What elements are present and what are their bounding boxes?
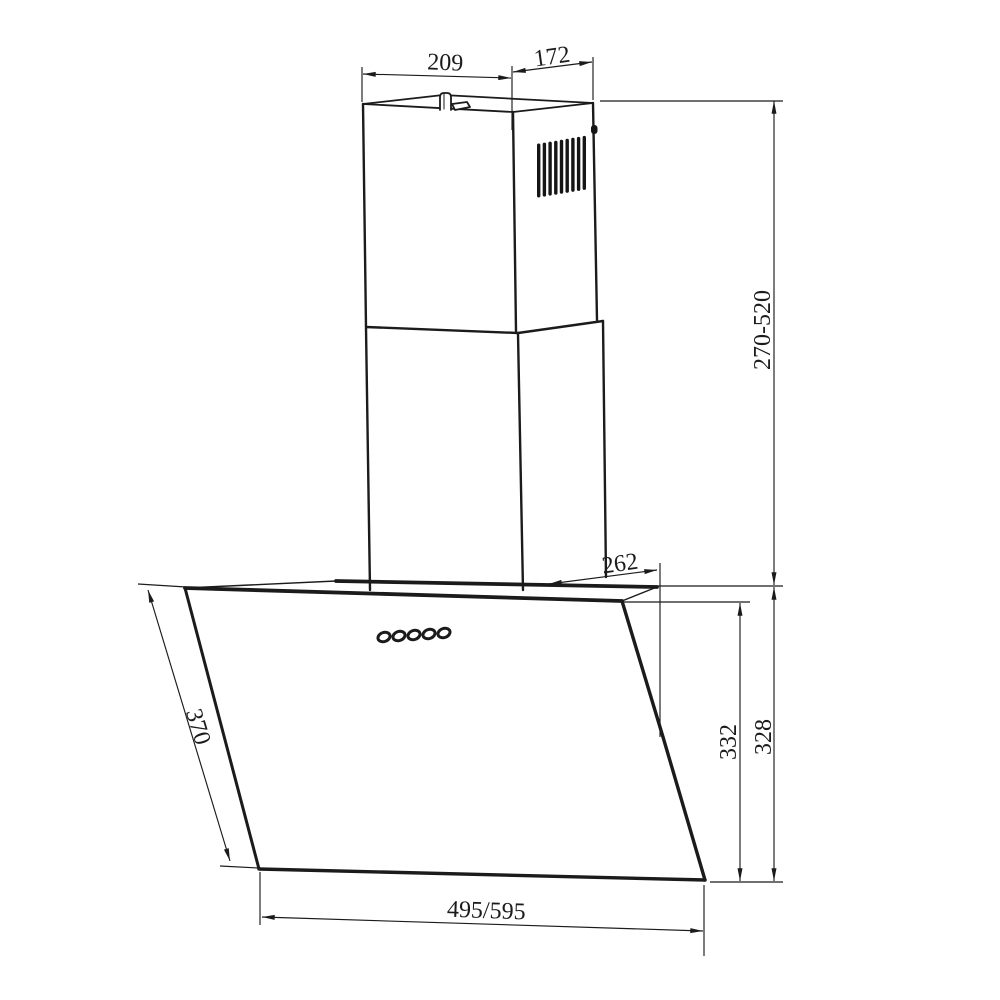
dim-label-canopy-top-depth: 262	[600, 549, 639, 580]
glass-right-edge	[622, 601, 705, 880]
chimney-lower-front-right-edge	[518, 334, 523, 590]
hood-canopy	[185, 581, 705, 880]
drawing-canvas: 209 172 270-520 262 332 328 370 495/595	[0, 0, 1000, 1000]
control-button-4	[422, 628, 437, 641]
control-button-3	[407, 629, 422, 642]
chimney-seam-side	[518, 321, 603, 333]
control-buttons	[377, 627, 452, 644]
vent-grille-icon	[537, 136, 586, 198]
control-button-2	[392, 630, 407, 643]
dim-label-body-rear-height: 328	[751, 719, 777, 755]
dim-label-hood-width-options: 495/595	[446, 897, 526, 926]
range-hood-dimension-drawing: 209 172 270-520 262 332 328 370 495/595	[0, 0, 1000, 1000]
chimney-lower-front-left-edge	[366, 328, 370, 590]
dim-label-chimney-top-depth: 172	[532, 42, 571, 73]
chimney-front-left-edge	[363, 104, 366, 327]
chimney-upper-section	[363, 93, 603, 333]
control-button-5	[437, 627, 452, 640]
chimney-top-face-rear	[363, 95, 593, 104]
canopy-top-front-edge	[185, 588, 622, 601]
canopy-top-right-sliver	[622, 587, 657, 601]
chimney-lower-rear-right-edge	[603, 321, 606, 577]
glass-bottom-edge	[259, 869, 705, 880]
dim-label-chimney-height-range: 270-520	[750, 290, 776, 370]
dim-label-glass-front-height: 332	[716, 724, 742, 760]
hood-outline	[185, 93, 705, 880]
dim-label-glass-slant-length: 370	[180, 706, 215, 748]
chimney-seam-front	[366, 327, 518, 333]
chimney-lower-section	[366, 321, 606, 590]
canopy-top-left-sliver	[185, 581, 336, 588]
chimney-top-face-front	[363, 103, 593, 112]
control-button-1	[377, 631, 392, 644]
dim-label-chimney-top-width: 209	[427, 49, 464, 76]
canopy-top-rear-edge	[336, 581, 657, 587]
chimney-rear-right-edge	[593, 103, 597, 320]
fastener-dot	[591, 125, 598, 134]
chimney-front-right-edge	[513, 112, 516, 331]
